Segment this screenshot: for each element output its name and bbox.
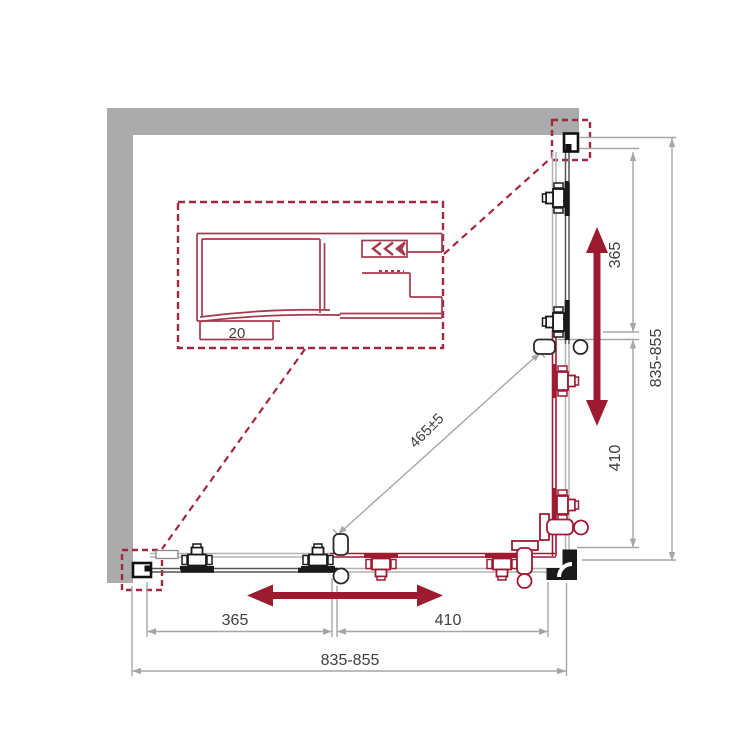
detail-callout-border — [178, 202, 443, 348]
roller-red-right-2 — [552, 488, 579, 522]
dim-bottom-365-label: 365 — [222, 612, 249, 629]
wall-corner — [107, 108, 579, 583]
dim-bottom-410-label: 410 — [435, 612, 462, 629]
dim-diagonal-label: 465±5 — [406, 410, 447, 451]
detail-leader-bottom-left — [162, 349, 305, 549]
roller-black-bottom-1 — [180, 544, 214, 571]
shower-enclosure-diagram: 20 — [0, 0, 750, 752]
detail-leader-top-right — [444, 157, 552, 254]
technical-drawing-page: 20 — [0, 0, 750, 752]
profile-section-drawing — [197, 234, 442, 340]
roller-black-right-2 — [543, 305, 570, 339]
dim-right-365-label: 365 — [607, 242, 624, 269]
roller-black-bottom-2 — [301, 544, 335, 571]
track-and-glass-lines — [150, 152, 569, 572]
detail-callout: 20 — [162, 157, 552, 549]
dim-bottom-total-label: 835-855 — [321, 652, 380, 669]
dim-right-total-label: 835-855 — [648, 329, 665, 388]
roller-red-bottom-2 — [485, 554, 519, 581]
roller-red-bottom-1 — [364, 554, 398, 581]
roller-black-right-1 — [543, 181, 570, 215]
detail-dim-20-label: 20 — [229, 325, 246, 342]
handle-bottom-door — [334, 534, 349, 584]
wall-profile-bottom-left — [133, 563, 151, 577]
slide-arrow-horizontal — [247, 585, 443, 607]
slide-arrow-vertical — [586, 227, 608, 426]
dim-right-410-label: 410 — [607, 445, 624, 472]
wall-profile-top-right — [564, 134, 578, 152]
handle-right-door — [534, 340, 588, 355]
roller-red-right-1 — [552, 364, 579, 398]
